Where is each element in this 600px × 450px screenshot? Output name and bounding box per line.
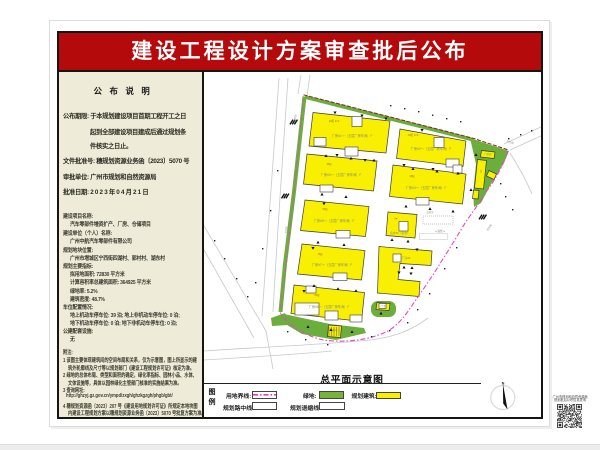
svg-text:门卫: 门卫 [381, 304, 386, 308]
svg-text:2#配 F=2: 2#配 F=2 [408, 133, 419, 137]
svg-text:厂房#8～（五层厂房车间）F: 厂房#8～（五层厂房车间）F [309, 304, 350, 309]
svg-text:规划路: 规划路 [485, 223, 493, 232]
svg-text:厂房#9: 厂房#9 [402, 256, 411, 260]
svg-text:厂房#5～（五层厂房车间）F: 厂房#5～（五层厂房车间）F [314, 218, 355, 223]
svg-text:5#配: 5#配 [322, 207, 328, 211]
svg-text:厂房#1～（五层厂房车间）F: 厂房#1～（五层厂房车间）F [332, 133, 373, 138]
svg-text:厂房#4～（五层厂房车间）F: 厂房#4～（五层厂房车间）F [406, 185, 447, 190]
svg-text:宿舍#6（宿舍）: 宿舍#6（宿舍） [390, 231, 410, 235]
svg-text:7#配: 7#配 [317, 252, 323, 256]
svg-text:厂房#2～（五层厂房车间）F: 厂房#2～（五层厂房车间）F [411, 146, 452, 151]
svg-text:厂房#7～（五层厂房车间）F: 厂房#7～（五层厂房车间）F [312, 262, 353, 267]
svg-text:8#配: 8#配 [314, 293, 320, 297]
svg-text:≡ 泊位 ≡: ≡ 泊位 ≡ [435, 229, 445, 233]
svg-text:4#配: 4#配 [409, 174, 415, 178]
svg-text:门卫房: 门卫房 [484, 152, 492, 156]
svg-text:厂房#3～（五层厂房车间）F: 厂房#3～（五层厂房车间）F [321, 172, 362, 177]
svg-text:配电: 配电 [333, 328, 338, 332]
svg-text:设备房: 设备房 [426, 210, 434, 214]
svg-text:3#配: 3#配 [326, 162, 332, 166]
svg-text:1#配 F=2: 1#配 F=2 [329, 119, 340, 123]
